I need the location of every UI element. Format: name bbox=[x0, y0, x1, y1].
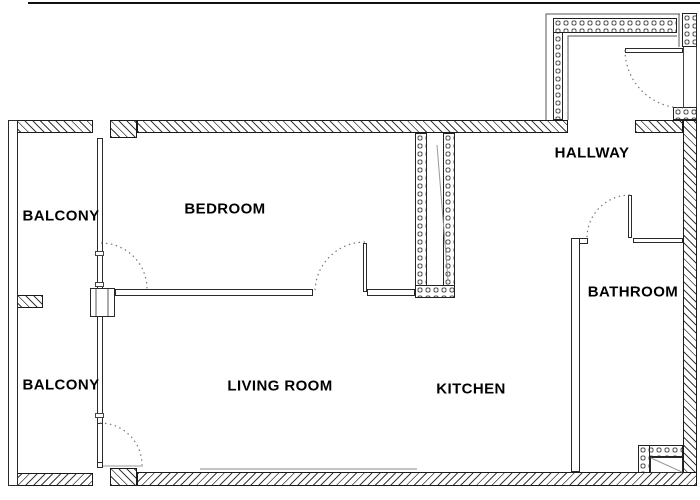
room-label-balcony-bottom: BALCONY bbox=[23, 377, 100, 394]
floor-plan-canvas: BALCONY BEDROOM HALLWAY BATHROOM BALCONY… bbox=[0, 0, 700, 500]
plan-line-overlay bbox=[0, 0, 700, 500]
entry-wall-outer-contour bbox=[546, 14, 680, 120]
junction-column-inner-lines bbox=[96, 289, 108, 316]
room-label-bedroom: BEDROOM bbox=[184, 201, 265, 218]
bathroom-door-arc bbox=[587, 195, 630, 238]
living-room-balcony-door-arc bbox=[100, 423, 142, 465]
bedroom-balcony-door-arc bbox=[101, 243, 147, 289]
room-label-balcony-top: BALCONY bbox=[23, 208, 100, 225]
entry-wall-inner-contour bbox=[568, 36, 677, 120]
entry-door-arc bbox=[625, 50, 683, 108]
kitchen-column-diagonal bbox=[437, 145, 448, 280]
room-label-hallway: HALLWAY bbox=[555, 145, 630, 162]
room-label-living-room: LIVING ROOM bbox=[227, 378, 332, 395]
bedroom-door-arc bbox=[315, 242, 365, 292]
room-label-kitchen: KITCHEN bbox=[436, 381, 505, 398]
room-label-bathroom: BATHROOM bbox=[588, 284, 678, 301]
shaft-diagonal bbox=[651, 458, 682, 472]
